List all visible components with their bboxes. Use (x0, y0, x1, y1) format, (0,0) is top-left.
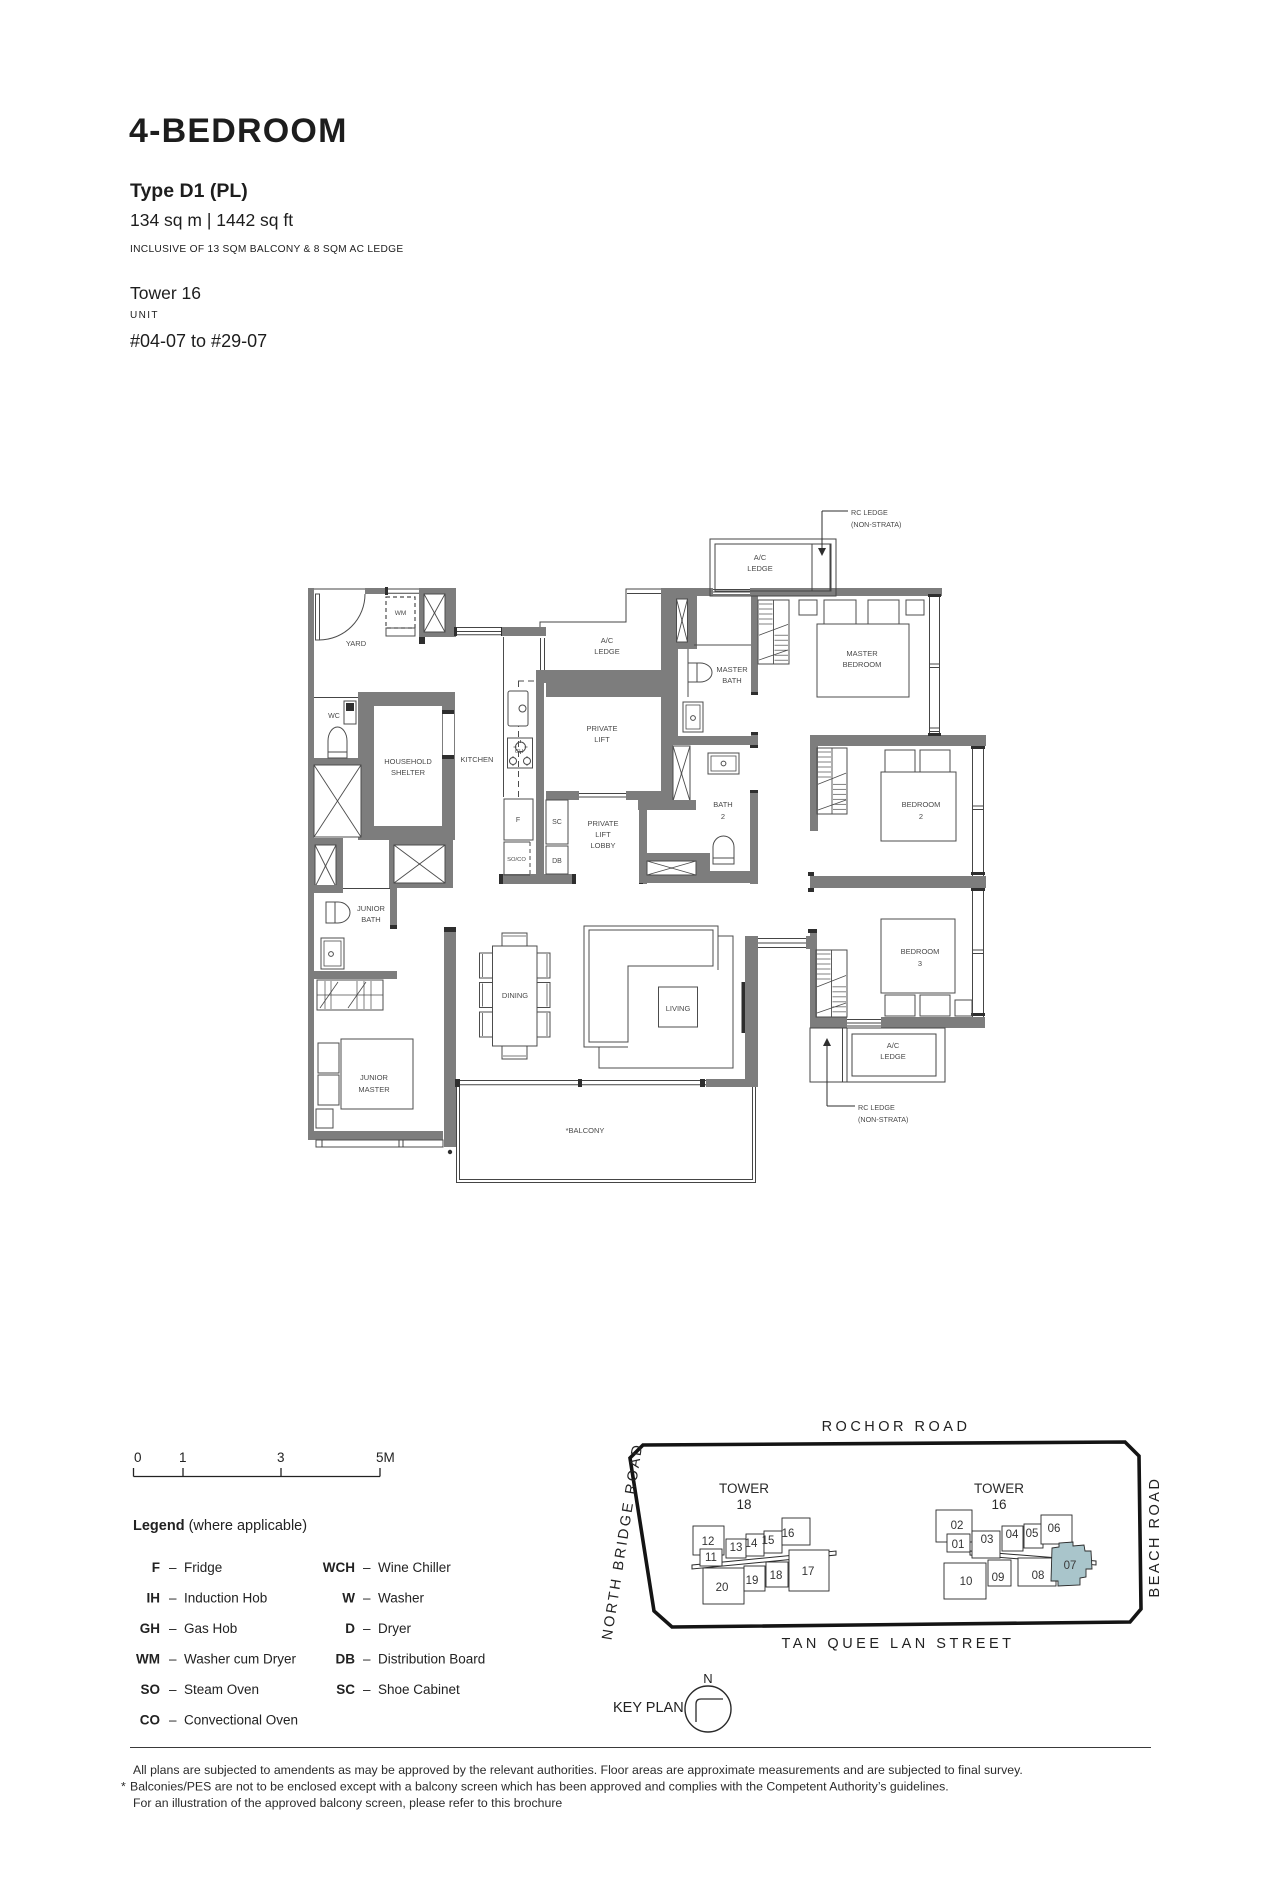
svg-text:Fridge: Fridge (184, 1560, 222, 1575)
svg-text:BEACH ROAD: BEACH ROAD (1147, 1477, 1163, 1598)
svg-text:16: 16 (991, 1497, 1006, 1512)
svg-text:05: 05 (1026, 1528, 1039, 1540)
svg-text:MASTER: MASTER (716, 665, 748, 674)
svg-text:04: 04 (1006, 1529, 1019, 1541)
svg-text:2: 2 (919, 812, 923, 821)
svg-text:–: – (363, 1560, 371, 1575)
svg-text:(NON-STRATA): (NON-STRATA) (858, 1115, 908, 1124)
svg-text:–: – (363, 1621, 371, 1636)
svg-text:F: F (152, 1560, 160, 1575)
svg-text:All plans are subjected to ame: All plans are subjected to amendents as … (133, 1763, 1023, 1777)
svg-text:#04-07 to #29-07: #04-07 to #29-07 (130, 331, 267, 351)
svg-text:YARD: YARD (346, 639, 367, 648)
svg-text:BEDROOM: BEDROOM (843, 660, 882, 669)
svg-text:Distribution Board: Distribution Board (378, 1652, 485, 1667)
svg-text:Shoe Cabinet: Shoe Cabinet (378, 1682, 460, 1697)
svg-text:1: 1 (179, 1450, 187, 1465)
svg-text:D: D (345, 1621, 355, 1636)
svg-text:3: 3 (918, 959, 922, 968)
svg-text:–: – (169, 1652, 177, 1667)
svg-text:A/C: A/C (754, 553, 767, 562)
svg-text:SC: SC (552, 819, 562, 826)
svg-text:LIVING: LIVING (666, 1004, 691, 1013)
svg-text:Steam Oven: Steam Oven (184, 1682, 259, 1697)
svg-text:WC: WC (328, 713, 340, 720)
svg-text:–: – (169, 1713, 177, 1728)
svg-text:Washer: Washer (378, 1591, 425, 1606)
svg-text:WCH: WCH (323, 1560, 355, 1575)
svg-text:JUNIOR: JUNIOR (360, 1073, 389, 1082)
svg-text:08: 08 (1032, 1570, 1045, 1582)
svg-text:DB: DB (552, 858, 562, 865)
svg-text:SO: SO (140, 1682, 160, 1697)
svg-text:BATH: BATH (713, 800, 732, 809)
svg-text:20: 20 (716, 1582, 729, 1594)
svg-text:16: 16 (782, 1528, 795, 1540)
svg-text:LOBBY: LOBBY (590, 841, 615, 850)
svg-text:GH: GH (140, 1621, 160, 1636)
svg-text:KEY PLAN: KEY PLAN (613, 1700, 684, 1716)
svg-text:MASTER: MASTER (358, 1085, 390, 1094)
svg-text:*BALCONY: *BALCONY (566, 1126, 605, 1135)
svg-text:02: 02 (951, 1520, 964, 1532)
svg-text:BATH: BATH (722, 676, 741, 685)
svg-text:TOWER: TOWER (719, 1481, 769, 1496)
svg-text:TAN QUEE LAN STREET: TAN QUEE LAN STREET (781, 1636, 1014, 1652)
svg-text:–: – (363, 1591, 371, 1606)
svg-text:11: 11 (705, 1552, 717, 1564)
svg-text:HOUSEHOLD: HOUSEHOLD (384, 757, 432, 766)
svg-text:4-BEDROOM: 4-BEDROOM (129, 112, 348, 150)
svg-text:Balconies/PES are not to be en: Balconies/PES are not to be enclosed exc… (130, 1780, 949, 1794)
svg-text:18: 18 (770, 1570, 783, 1582)
svg-text:ROCHOR ROAD: ROCHOR ROAD (822, 1419, 971, 1435)
svg-text:07: 07 (1064, 1560, 1077, 1572)
svg-text:A/C: A/C (887, 1041, 900, 1050)
svg-text:UNIT: UNIT (130, 310, 159, 321)
svg-text:INCLUSIVE OF 13 SQM BALCONY &: INCLUSIVE OF 13 SQM BALCONY & 8 SQM AC L… (130, 244, 403, 255)
svg-text:F: F (516, 817, 520, 824)
svg-text:SHELTER: SHELTER (391, 768, 426, 777)
svg-text:*: * (121, 1780, 126, 1794)
svg-text:SO/CO: SO/CO (507, 857, 526, 863)
svg-text:5M: 5M (376, 1450, 395, 1465)
svg-text:RC LEDGE: RC LEDGE (851, 508, 888, 517)
svg-text:Legend (where applicable): Legend (where applicable) (133, 1518, 307, 1534)
svg-text:06: 06 (1048, 1523, 1061, 1535)
svg-text:CO: CO (140, 1713, 160, 1728)
svg-text:BEDROOM: BEDROOM (902, 800, 941, 809)
svg-text:Induction Hob: Induction Hob (184, 1591, 267, 1606)
svg-text:15: 15 (762, 1535, 775, 1547)
svg-text:IH: IH (147, 1591, 161, 1606)
svg-text:–: – (169, 1560, 177, 1575)
svg-text:WM: WM (395, 610, 407, 617)
svg-text:18: 18 (736, 1497, 751, 1512)
svg-text:2: 2 (721, 812, 725, 821)
svg-text:WM: WM (136, 1652, 160, 1667)
svg-text:DB: DB (336, 1652, 356, 1667)
svg-text:PRIVATE: PRIVATE (588, 819, 619, 828)
svg-text:09: 09 (992, 1572, 1005, 1584)
svg-text:Washer cum Dryer: Washer cum Dryer (184, 1652, 297, 1667)
svg-text:12: 12 (702, 1536, 715, 1548)
svg-text:LIFT: LIFT (595, 830, 611, 839)
svg-text:134 sq m | 1442 sq ft: 134 sq m | 1442 sq ft (130, 210, 293, 230)
svg-text:13: 13 (730, 1542, 743, 1554)
svg-text:KITCHEN: KITCHEN (461, 755, 494, 764)
svg-text:03: 03 (981, 1534, 994, 1546)
svg-text:–: – (169, 1621, 177, 1636)
svg-text:MASTER: MASTER (846, 649, 878, 658)
svg-text:–: – (363, 1652, 371, 1667)
svg-text:01: 01 (952, 1539, 965, 1551)
svg-text:Dryer: Dryer (378, 1621, 412, 1636)
svg-text:3: 3 (277, 1450, 285, 1465)
svg-text:19: 19 (746, 1575, 759, 1587)
svg-text:TOWER: TOWER (974, 1481, 1024, 1496)
svg-text:JUNIOR: JUNIOR (357, 904, 386, 913)
svg-text:(NON-STRATA): (NON-STRATA) (851, 520, 901, 529)
svg-text:LEDGE: LEDGE (594, 647, 619, 656)
svg-text:LIFT: LIFT (594, 735, 610, 744)
svg-text:PRIVATE: PRIVATE (587, 724, 618, 733)
svg-text:10: 10 (960, 1576, 973, 1588)
svg-text:A/C: A/C (601, 636, 614, 645)
svg-text:–: – (169, 1591, 177, 1606)
svg-text:SC: SC (336, 1682, 355, 1697)
svg-text:17: 17 (802, 1566, 815, 1578)
svg-text:BEDROOM: BEDROOM (901, 947, 940, 956)
svg-text:RC LEDGE: RC LEDGE (858, 1103, 895, 1112)
svg-text:W: W (342, 1591, 355, 1606)
svg-text:LEDGE: LEDGE (747, 564, 772, 573)
svg-text:LEDGE: LEDGE (880, 1052, 905, 1061)
svg-text:For an illustration of the app: For an illustration of the approved balc… (133, 1796, 562, 1810)
svg-text:0: 0 (134, 1450, 142, 1465)
svg-text:BATH: BATH (361, 915, 380, 924)
svg-text:Gas Hob: Gas Hob (184, 1621, 237, 1636)
svg-text:Tower 16: Tower 16 (130, 283, 201, 303)
svg-text:Wine Chiller: Wine Chiller (378, 1560, 451, 1575)
svg-text:N: N (703, 1671, 712, 1686)
svg-text:Type D1 (PL): Type D1 (PL) (130, 180, 248, 202)
svg-text:–: – (363, 1682, 371, 1697)
svg-text:GH: GH (515, 749, 523, 755)
svg-text:–: – (169, 1682, 177, 1697)
svg-text:DINING: DINING (502, 991, 528, 1000)
svg-text:Convectional Oven: Convectional Oven (184, 1713, 298, 1728)
svg-text:14: 14 (745, 1538, 758, 1550)
